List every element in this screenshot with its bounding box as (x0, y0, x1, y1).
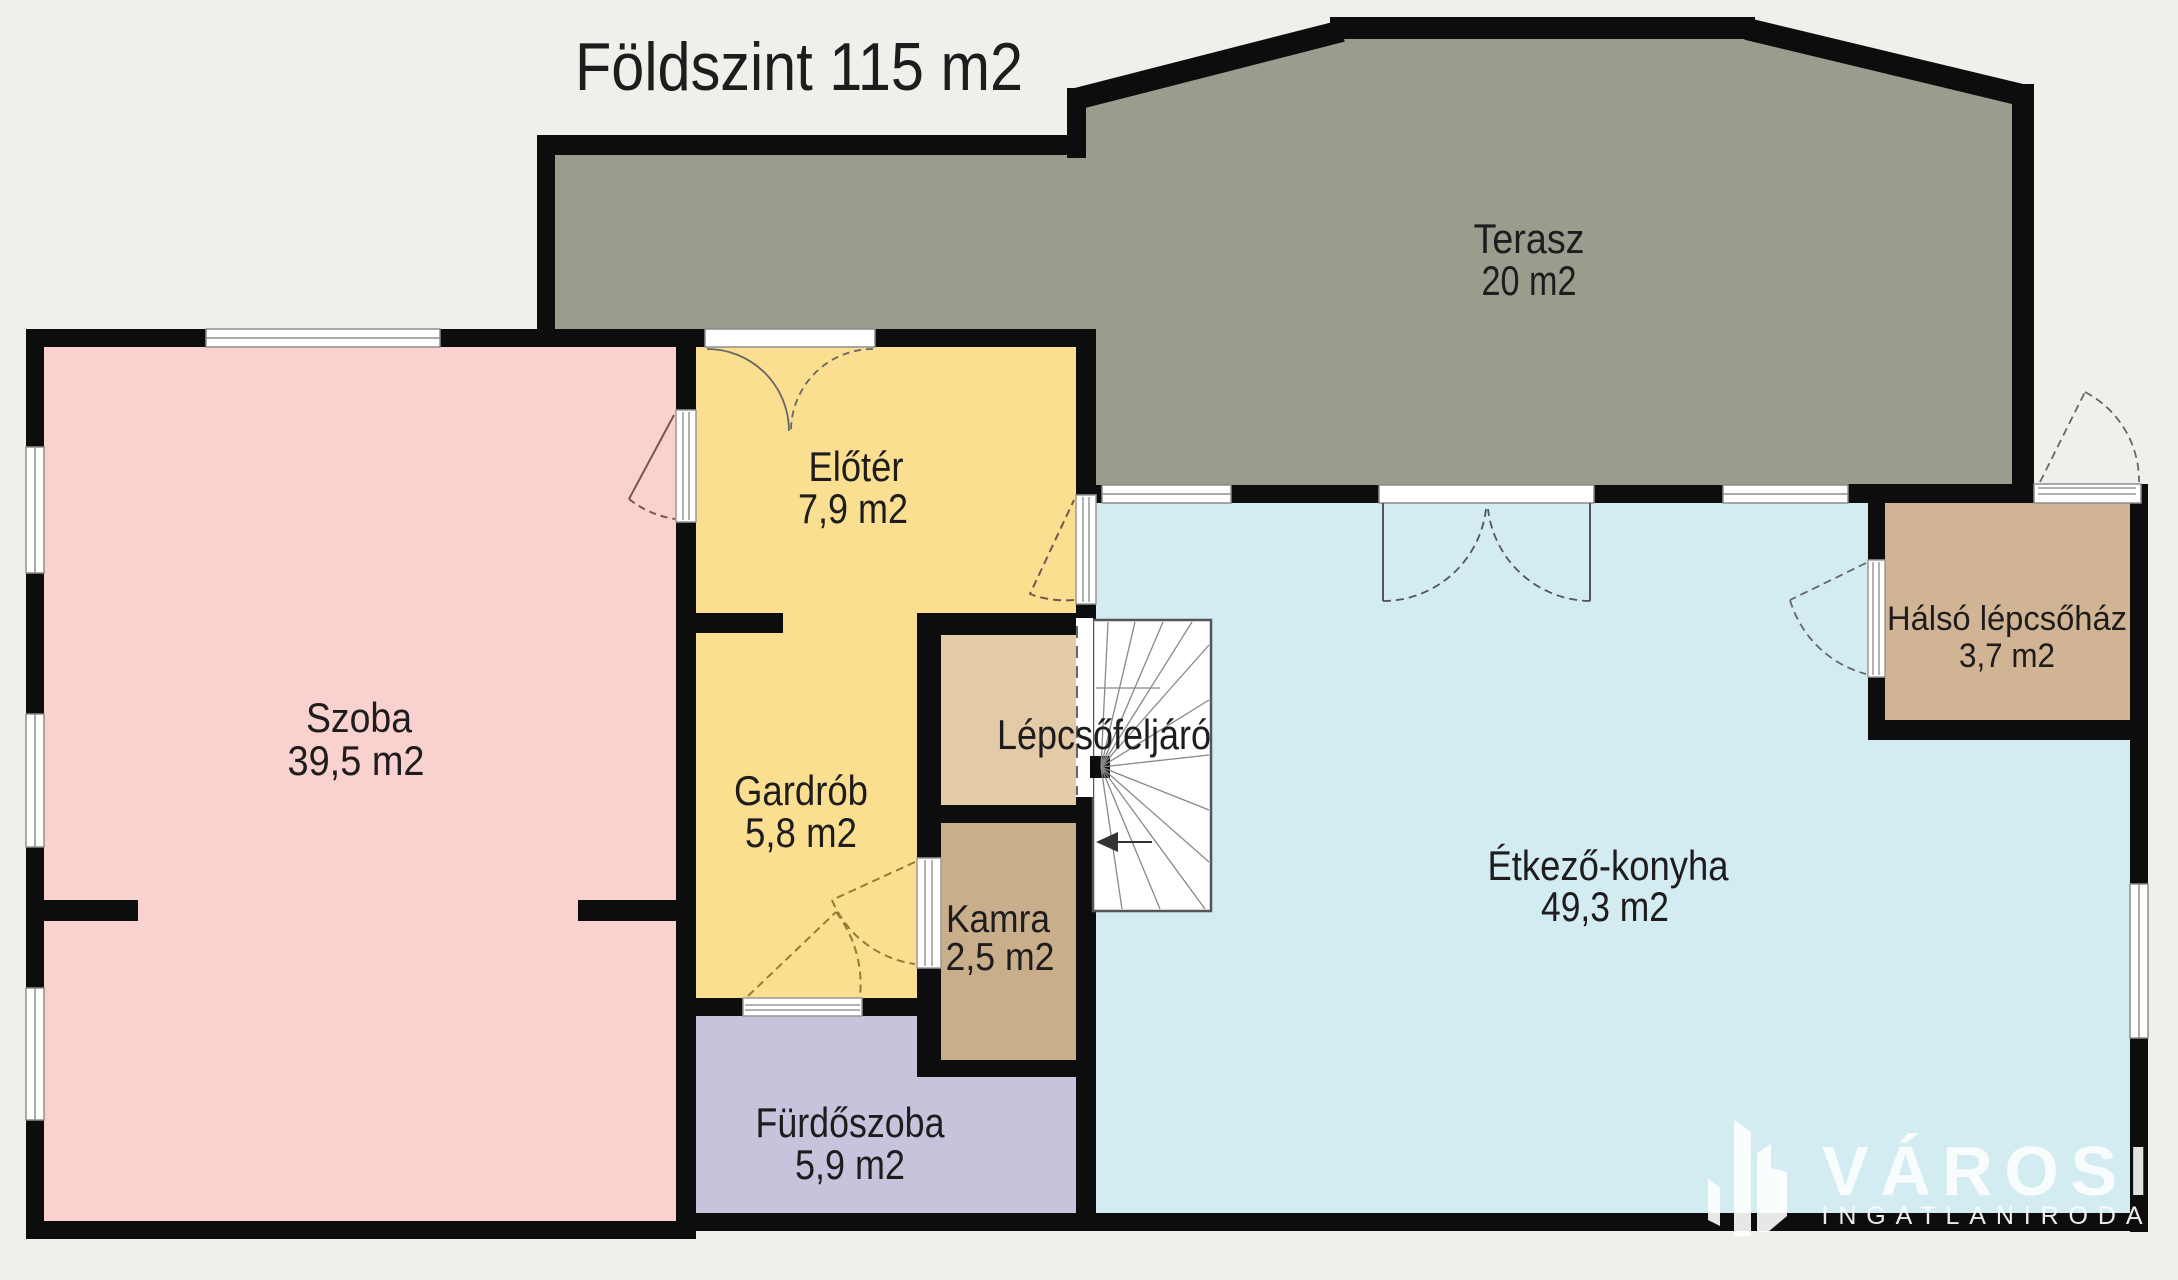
svg-text:Előtér: Előtér (809, 443, 904, 490)
svg-text:Gardrób: Gardrób (734, 767, 868, 814)
svg-text:20 m2: 20 m2 (1482, 257, 1577, 304)
svg-text:Földszint 115 m2: Földszint 115 m2 (575, 29, 1023, 105)
svg-text:5,9 m2: 5,9 m2 (795, 1141, 905, 1188)
svg-text:3,7 m2: 3,7 m2 (1959, 637, 2055, 675)
svg-text:Terasz: Terasz (1474, 215, 1585, 262)
svg-text:7,9 m2: 7,9 m2 (798, 485, 908, 532)
svg-text:39,5 m2: 39,5 m2 (288, 737, 425, 784)
svg-text:Hálsó lépcsőház: Hálsó lépcsőház (1887, 600, 2127, 638)
svg-text:Kamra: Kamra (946, 898, 1050, 941)
svg-text:Lépcsőfeljáró: Lépcsőfeljáró (997, 711, 1211, 758)
svg-text:Fürdőszoba: Fürdőszoba (756, 1099, 946, 1146)
svg-text:2,5 m2: 2,5 m2 (946, 936, 1055, 979)
svg-text:5,8 m2: 5,8 m2 (745, 809, 857, 856)
svg-text:Étkező-konyha: Étkező-konyha (1488, 842, 1730, 889)
svg-text:Szoba: Szoba (306, 694, 413, 741)
svg-text:49,3 m2: 49,3 m2 (1541, 883, 1669, 930)
